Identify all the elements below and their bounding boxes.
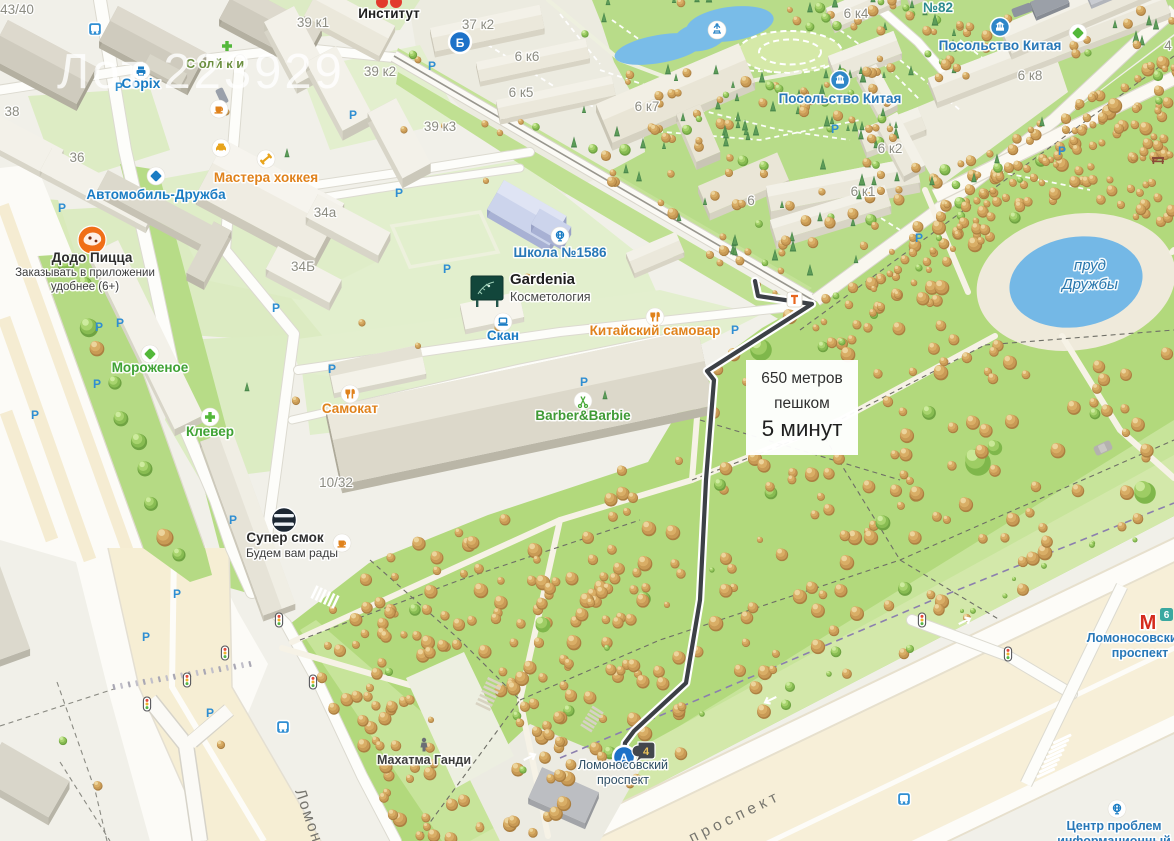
svg-text:пешком: пешком: [774, 395, 830, 412]
svg-text:34Б: 34Б: [291, 259, 315, 274]
svg-text:P: P: [831, 122, 839, 136]
svg-text:Скан: Скан: [487, 328, 519, 343]
svg-text:Школа №1586: Школа №1586: [514, 245, 607, 260]
svg-text:Самокат: Самокат: [322, 401, 379, 416]
svg-text:пруд: пруд: [1074, 257, 1106, 274]
svg-text:P: P: [1058, 144, 1066, 158]
svg-text:Институт: Институт: [358, 6, 420, 21]
svg-text:№82: №82: [923, 0, 953, 15]
svg-text:6 к7: 6 к7: [635, 99, 660, 114]
svg-text:Махатма Ганди: Махатма Ганди: [377, 753, 471, 767]
svg-text:Додо Пицца: Додо Пицца: [52, 250, 133, 265]
svg-text:информационный: информационный: [1057, 834, 1171, 841]
svg-text:38: 38: [4, 104, 19, 119]
svg-text:Посольство Китая: Посольство Китая: [779, 91, 902, 106]
svg-text:Gardenia: Gardenia: [510, 271, 576, 288]
svg-text:6: 6: [1164, 610, 1170, 621]
svg-text:Ломоносовский: Ломоносовский: [578, 758, 668, 772]
svg-text:удобнее (6+): удобнее (6+): [51, 281, 119, 293]
svg-text:Ломоносовский: Ломоносовский: [1087, 631, 1174, 645]
svg-text:P: P: [93, 377, 101, 391]
svg-text:Центр проблем: Центр проблем: [1066, 819, 1161, 833]
svg-text:P: P: [116, 316, 124, 330]
svg-text:P: P: [443, 262, 451, 276]
svg-text:P: P: [142, 630, 150, 644]
svg-text:P: P: [173, 587, 181, 601]
svg-text:Косметология: Косметология: [510, 290, 591, 304]
svg-text:P: P: [428, 59, 436, 73]
svg-text:P: P: [58, 201, 66, 215]
svg-text:Будем вам рады: Будем вам рады: [246, 546, 338, 560]
svg-text:650 метров: 650 метров: [761, 370, 843, 387]
svg-text:6 к8: 6 к8: [1018, 68, 1043, 83]
svg-text:Клевер: Клевер: [186, 424, 234, 439]
svg-text:6 к2: 6 к2: [878, 141, 903, 156]
svg-text:Дружбы: Дружбы: [1060, 276, 1118, 293]
svg-text:P: P: [915, 231, 923, 245]
svg-text:проспект: проспект: [597, 773, 649, 787]
svg-text:Б: Б: [456, 36, 465, 50]
svg-text:34а: 34а: [314, 205, 337, 220]
svg-text:43/40: 43/40: [0, 2, 34, 17]
svg-text:P: P: [31, 408, 39, 422]
svg-text:Китайский самовар: Китайский самовар: [590, 323, 721, 338]
svg-text:P: P: [328, 362, 336, 376]
svg-text:37 к2: 37 к2: [462, 17, 494, 32]
svg-text:P: P: [349, 108, 357, 122]
svg-text:P: P: [229, 513, 237, 527]
svg-text:Barber&Barbie: Barber&Barbie: [535, 408, 631, 423]
svg-text:P: P: [731, 323, 739, 337]
svg-text:Автомобиль-Дружба: Автомобиль-Дружба: [86, 187, 226, 202]
svg-text:4: 4: [1164, 38, 1172, 53]
svg-text:10/32: 10/32: [319, 475, 353, 490]
svg-text:Мороженое: Мороженое: [112, 360, 189, 375]
svg-text:36: 36: [69, 150, 84, 165]
svg-text:Заказывать в приложении: Заказывать в приложении: [15, 267, 155, 279]
svg-text:P: P: [206, 706, 214, 720]
svg-text:Супер смок: Супер смок: [246, 530, 323, 545]
svg-text:4: 4: [643, 746, 650, 758]
svg-text:6: 6: [747, 193, 755, 208]
svg-text:39 к3: 39 к3: [424, 119, 456, 134]
svg-text:Мастера хоккея: Мастера хоккея: [214, 170, 318, 185]
svg-text:6 к4: 6 к4: [844, 6, 869, 21]
svg-text:P: P: [395, 186, 403, 200]
svg-text:6 к6: 6 к6: [515, 49, 540, 64]
svg-text:6 к5: 6 к5: [509, 85, 534, 100]
svg-text:P: P: [95, 320, 103, 334]
svg-text:Лот 223929: Лот 223929: [57, 45, 345, 99]
svg-text:P: P: [580, 375, 588, 389]
svg-text:проспект: проспект: [1112, 646, 1169, 660]
svg-text:6 к1: 6 к1: [851, 184, 876, 199]
svg-text:Посольство Китая: Посольство Китая: [939, 38, 1062, 53]
svg-text:39 к1: 39 к1: [297, 15, 329, 30]
svg-text:39 к2: 39 к2: [364, 64, 396, 79]
svg-text:P: P: [272, 301, 280, 315]
svg-text:5 минут: 5 минут: [762, 416, 843, 441]
